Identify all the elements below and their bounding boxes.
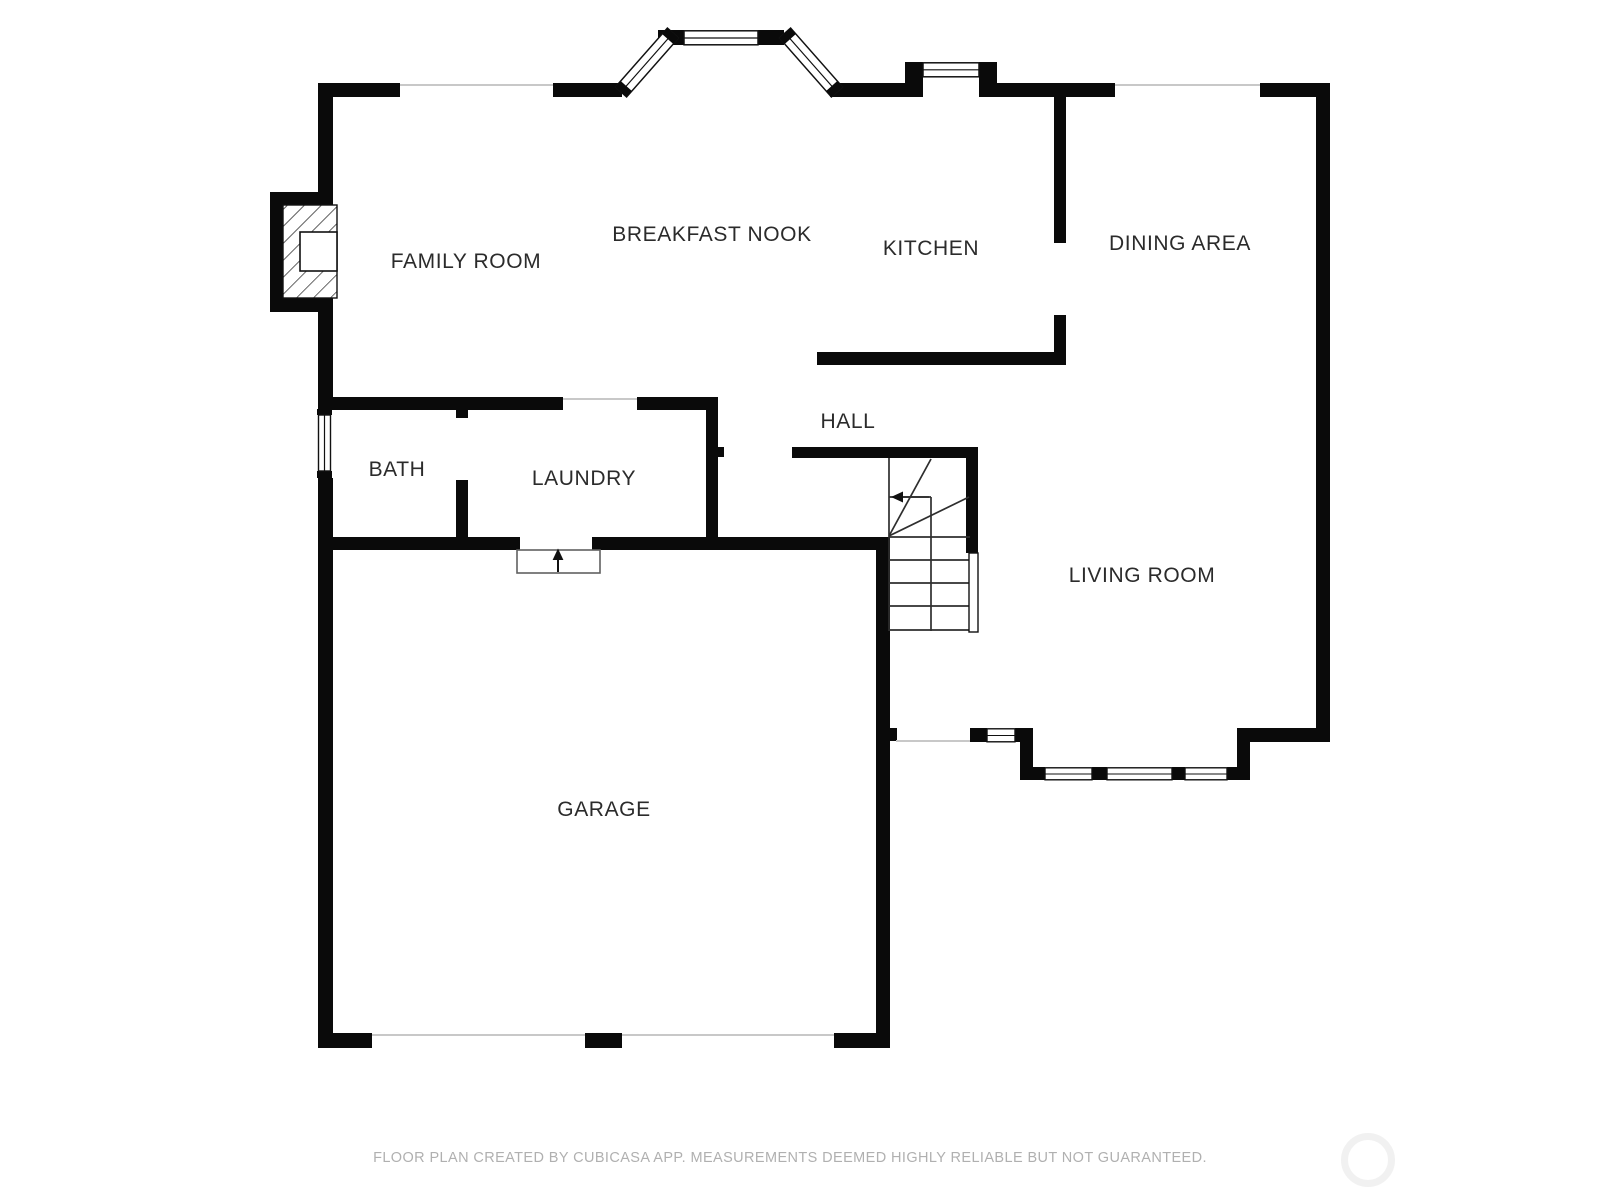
floor-plan-canvas: FAMILY ROOM BREAKFAST NOOK KITCHEN DININ…: [0, 0, 1600, 1200]
bay-window: [615, 28, 842, 97]
window: [1045, 768, 1092, 780]
room-label-bath: BATH: [369, 458, 426, 482]
wall-opening-lines: [372, 85, 1260, 1035]
room-label-garage: GARAGE: [557, 798, 650, 822]
window: [923, 63, 979, 77]
room-label-hall: HALL: [821, 410, 876, 434]
footer-disclaimer: FLOOR PLAN CREATED BY CUBICASA APP. MEAS…: [373, 1150, 1207, 1166]
room-label-breakfast-nook: BREAKFAST NOOK: [612, 223, 811, 247]
window: [1185, 768, 1227, 780]
stairs: [889, 458, 978, 632]
exterior-walls: [318, 62, 1330, 1048]
fireplace: [270, 192, 337, 312]
window: [987, 729, 1015, 742]
stair-direction-arrow: [891, 492, 903, 503]
fireplace-firebox: [300, 232, 337, 271]
room-label-laundry: LAUNDRY: [532, 467, 636, 491]
stair-break-line: [889, 497, 969, 536]
interior-walls: [318, 97, 1066, 553]
entry-door: [517, 549, 600, 574]
stair-railing: [969, 553, 978, 632]
room-label-family-room: FAMILY ROOM: [391, 250, 542, 274]
window: [1107, 768, 1172, 780]
window: [317, 409, 332, 478]
room-label-kitchen: KITCHEN: [883, 237, 979, 261]
room-label-dining-area: DINING AREA: [1109, 232, 1251, 256]
windows: [317, 63, 1227, 780]
watermark-circle: [1341, 1133, 1395, 1187]
room-label-living-room: LIVING ROOM: [1069, 564, 1216, 588]
floor-plan-drawing: [0, 0, 1600, 1200]
